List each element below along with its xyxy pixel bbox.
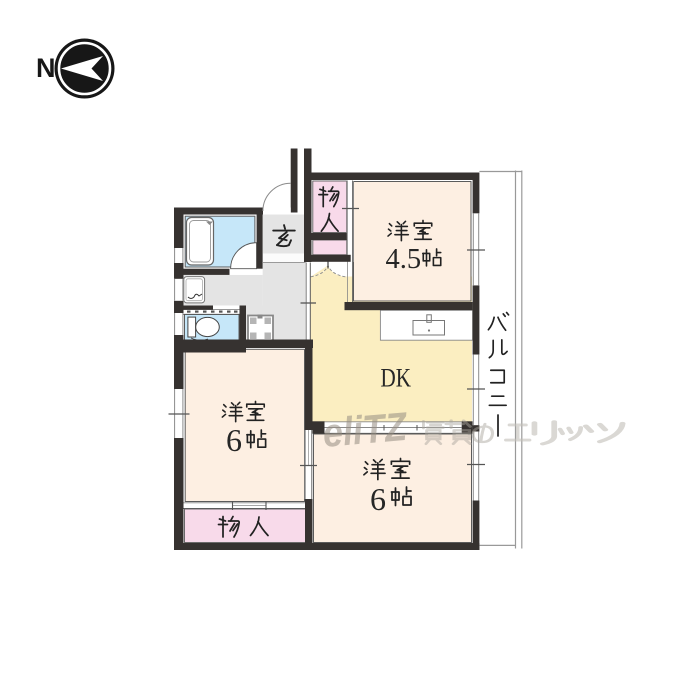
svg-text:N: N bbox=[36, 53, 56, 83]
svg-text:6: 6 bbox=[226, 422, 242, 458]
svg-text:DK: DK bbox=[381, 364, 412, 393]
svg-text:4.5: 4.5 bbox=[386, 244, 422, 275]
svg-text:6: 6 bbox=[370, 481, 386, 517]
svg-text:eliTZ: eliTZ bbox=[321, 405, 410, 456]
